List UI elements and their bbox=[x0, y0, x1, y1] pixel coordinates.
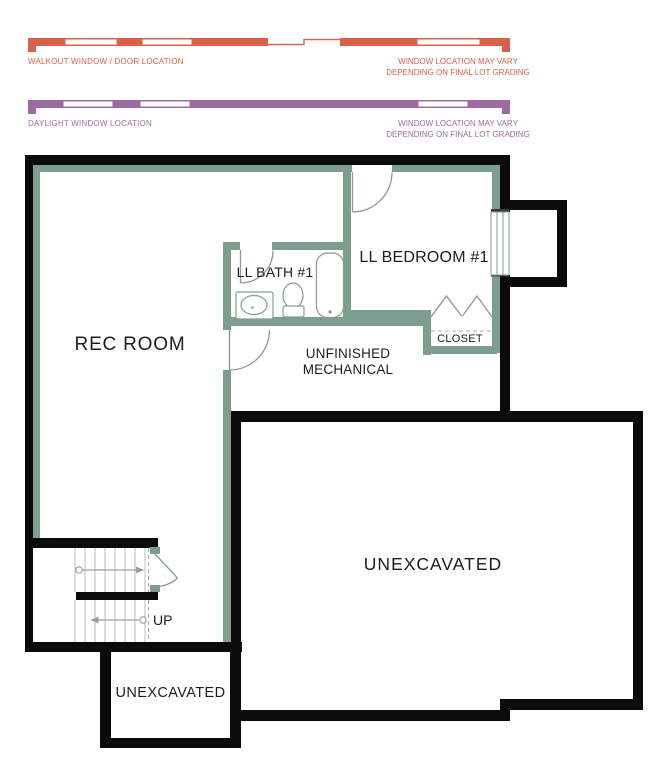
arrow-head bbox=[136, 567, 145, 574]
arrow-start-circle bbox=[76, 567, 82, 573]
wall-segment bbox=[223, 370, 231, 642]
tub-drain bbox=[328, 310, 331, 313]
exterior-walls bbox=[25, 155, 510, 652]
daylight-window-symbol bbox=[418, 101, 468, 107]
wall-segment bbox=[25, 642, 242, 652]
bath-label: LL BATH #1 bbox=[221, 264, 329, 280]
wall-segment bbox=[33, 165, 352, 172]
daylight-left-endcap bbox=[28, 100, 36, 114]
wall-segment bbox=[272, 242, 351, 250]
unexcavated-small-label: UNEXCAVATED bbox=[110, 685, 231, 701]
closet-label: CLOSET bbox=[429, 333, 491, 345]
wall-segment bbox=[392, 165, 492, 172]
walkout-window-symbol bbox=[142, 39, 192, 45]
legend-daylight-note-line1: WINDOW LOCATION MAY VARY bbox=[348, 118, 568, 129]
wall-segment bbox=[25, 155, 510, 165]
wall-segment bbox=[492, 165, 500, 212]
wall-segment bbox=[500, 699, 510, 721]
sink-drain bbox=[251, 306, 254, 309]
basement-floorplan: WALKOUT WINDOW / DOOR LOCATION WINDOW LO… bbox=[0, 0, 670, 768]
door-swing-arc bbox=[230, 330, 270, 370]
legend-walkout-note: WINDOW LOCATION MAY VARY DEPENDING ON FI… bbox=[348, 56, 568, 78]
wall-segment bbox=[500, 275, 510, 420]
daylight-right-endcap bbox=[502, 100, 510, 114]
walkout-window-symbol bbox=[65, 39, 117, 45]
legend-daylight-label: DAYLIGHT WINDOW LOCATION bbox=[28, 119, 152, 128]
wall-segment bbox=[33, 165, 40, 538]
bifold-door-leaf bbox=[463, 296, 493, 317]
toilet bbox=[283, 283, 304, 317]
legend-walkout-note-line1: WINDOW LOCATION MAY VARY bbox=[348, 56, 568, 67]
wall-segment bbox=[25, 538, 158, 548]
legend-daylight-note: WINDOW LOCATION MAY VARY DEPENDING ON FI… bbox=[348, 118, 568, 140]
stair-door bbox=[155, 554, 178, 587]
wall-segment bbox=[100, 738, 241, 748]
bathtub bbox=[317, 253, 344, 318]
legend-walkout-note-line2: DEPENDING ON FINAL LOT GRADING bbox=[348, 67, 568, 78]
mechanical-label-line1: UNFINISHED bbox=[288, 346, 408, 362]
arrow-head bbox=[90, 617, 99, 624]
wall-segment bbox=[231, 411, 643, 422]
wall-segment bbox=[223, 242, 231, 330]
tub-outline bbox=[317, 253, 344, 318]
mechanical-door bbox=[230, 330, 270, 370]
stair-run-divider bbox=[76, 592, 158, 600]
walkout-left-endcap bbox=[28, 38, 36, 52]
wall-segment bbox=[505, 277, 567, 287]
toilet-tank bbox=[283, 306, 304, 317]
legend-walkout-bar bbox=[28, 37, 510, 52]
sink-basin bbox=[241, 296, 267, 315]
window-well bbox=[505, 200, 567, 287]
wall-segment bbox=[557, 200, 567, 287]
wall-segment bbox=[231, 411, 241, 652]
daylight-window-symbol bbox=[63, 101, 113, 107]
door-leaf bbox=[155, 554, 178, 578]
wall-segment bbox=[423, 346, 497, 354]
walkout-right-endcap bbox=[502, 38, 510, 52]
bath-vanity-sink bbox=[236, 292, 273, 319]
bifold-door-leaf bbox=[431, 296, 462, 317]
bedroom-label: LL BEDROOM #1 bbox=[353, 249, 495, 267]
wall-segment bbox=[492, 275, 500, 353]
wall-segment bbox=[633, 411, 643, 710]
daylight-window-symbol bbox=[140, 101, 190, 107]
legend-daylight-note-line2: DEPENDING ON FINAL LOT GRADING bbox=[348, 129, 568, 140]
wall-segment bbox=[230, 650, 241, 748]
mechanical-label: UNFINISHED MECHANICAL bbox=[288, 346, 408, 377]
rec-room-label: REC ROOM bbox=[50, 334, 210, 356]
wall-segment bbox=[343, 171, 351, 318]
legend-walkout-label: WALKOUT WINDOW / DOOR LOCATION bbox=[28, 57, 184, 66]
wall-segment bbox=[223, 242, 240, 250]
stair-up-label: UP bbox=[153, 612, 193, 628]
wall-segment bbox=[25, 155, 33, 652]
door-swing-arc bbox=[353, 173, 393, 213]
closet-bifold-doors bbox=[431, 296, 492, 331]
wall-segment bbox=[343, 310, 431, 318]
stair-door-jamb bbox=[150, 547, 160, 554]
wall-segment bbox=[510, 699, 643, 710]
mechanical-label-line2: MECHANICAL bbox=[288, 362, 408, 378]
bedroom-door bbox=[353, 172, 393, 212]
toilet-bowl bbox=[283, 283, 303, 308]
legend-daylight-bar bbox=[28, 100, 510, 114]
unexcavated-main-label: UNEXCAVATED bbox=[333, 554, 533, 575]
floorplan-drawing bbox=[0, 0, 670, 768]
wall-segment bbox=[241, 710, 510, 721]
arrow-start-circle bbox=[140, 617, 146, 623]
walkout-window-symbol bbox=[417, 39, 480, 45]
